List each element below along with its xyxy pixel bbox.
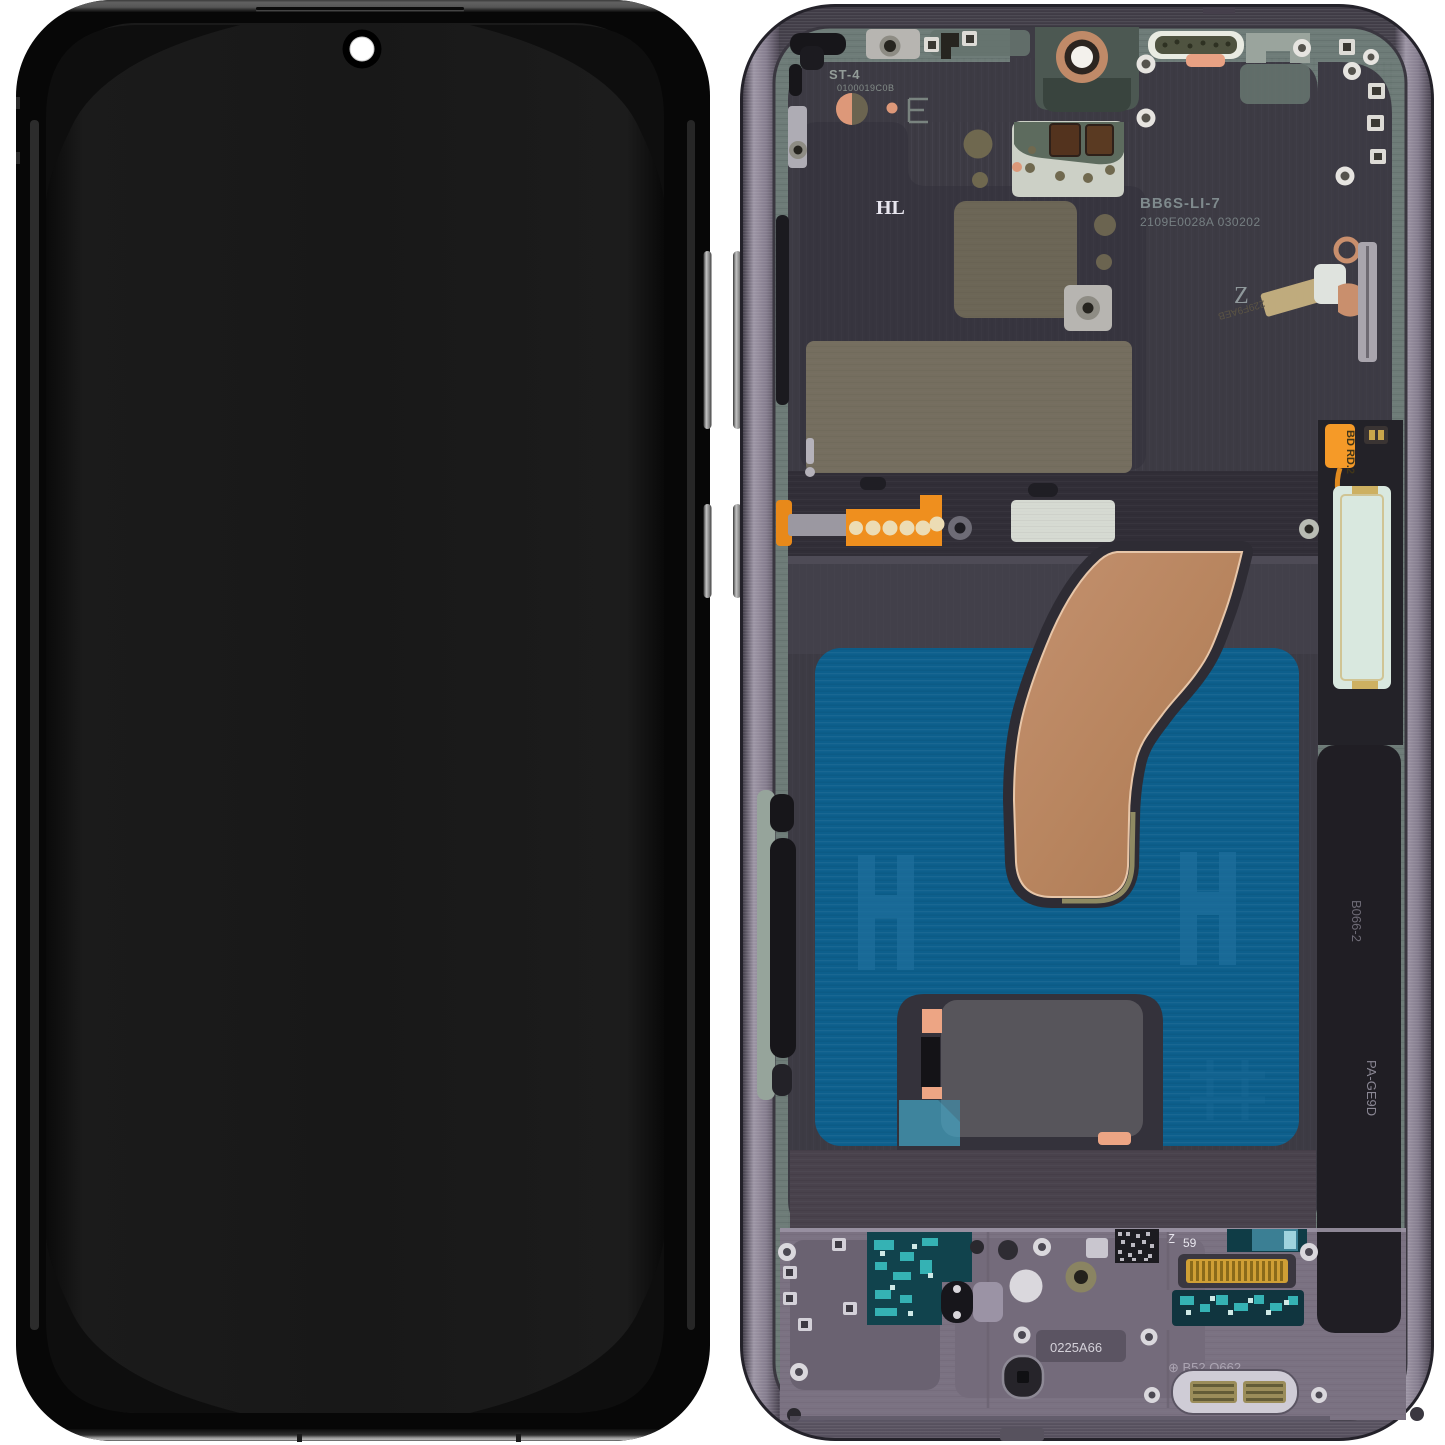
svg-text:BD RD.2: BD RD.2 [1344,430,1356,474]
svg-text:B066-2: B066-2 [1349,900,1364,942]
svg-text:BB6S-LI-7: BB6S-LI-7 [1140,195,1221,212]
svg-text:PA-GE9D: PA-GE9D [1364,1060,1379,1116]
svg-text:59: 59 [1183,1236,1197,1250]
svg-text:HL: HL [876,197,905,219]
svg-text:0225A66: 0225A66 [1050,1340,1102,1355]
svg-text:ST-4: ST-4 [829,67,860,82]
svg-text:2109E0028A 030202: 2109E0028A 030202 [1140,215,1261,229]
svg-text:0100019C0B: 0100019C0B [837,83,895,93]
